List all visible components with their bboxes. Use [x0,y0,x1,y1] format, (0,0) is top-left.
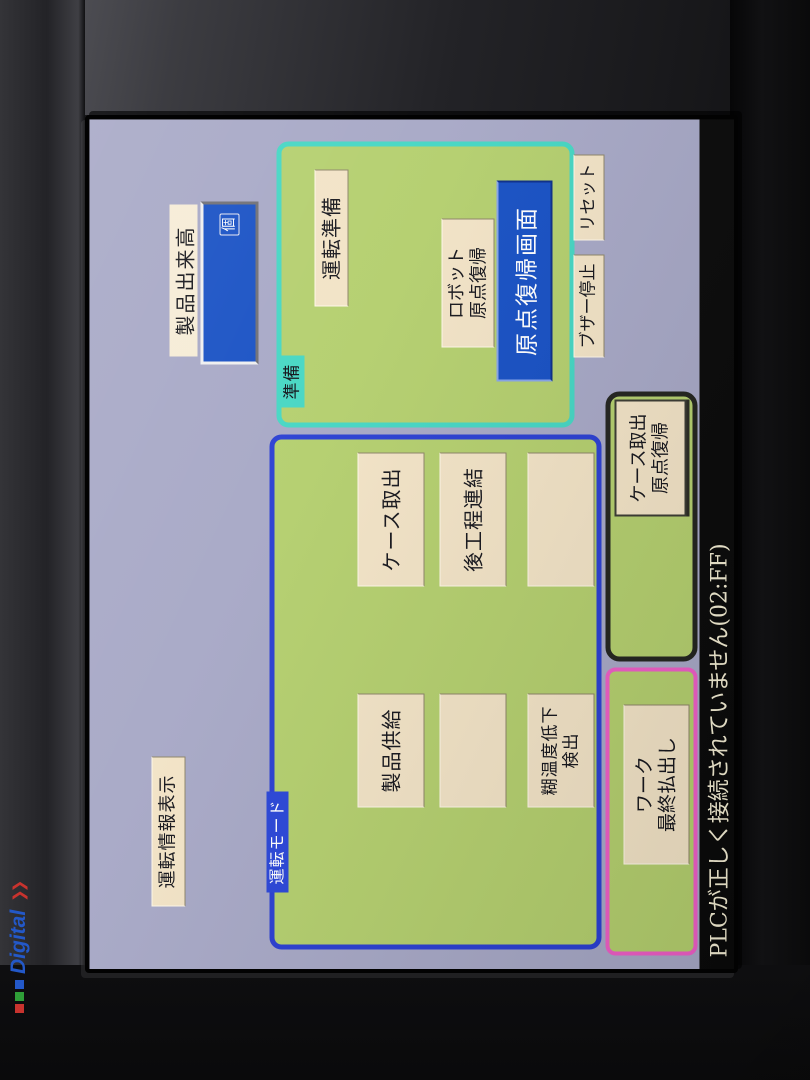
blank-button-right[interactable] [527,452,594,586]
work-discharge-button[interactable]: ワーク 最終払出し [623,704,689,864]
bezel-right-face [730,0,810,1080]
info-display-button[interactable]: 運転情報表示 [151,756,185,906]
robot-home-button[interactable]: ロボット 原点復帰 [441,218,494,347]
touchscreen: 運転情報表示 製品出来高 個 準備 運転準備 ロボット 原点復帰 原点復帰画面 … [85,115,738,973]
product-supply-button[interactable]: 製品供給 [357,693,424,807]
work-discharge-section: ワーク 最終払出し [605,667,697,955]
run-mode-section-title: 運転モード [266,791,288,892]
run-prepare-button[interactable]: 運転準備 [314,169,348,306]
glue-temp-low-button[interactable]: 糊温度低下 検出 [527,693,594,807]
hmi-ui: 運転情報表示 製品出来高 個 準備 運転準備 ロボット 原点復帰 原点復帰画面 … [89,119,734,969]
case-takeout-button[interactable]: ケース取出 [357,452,424,586]
logo-blue-square [15,980,24,989]
prepare-section: 準備 運転準備 ロボット 原点復帰 原点復帰画面 [276,141,574,427]
home-screen-button[interactable]: 原点復帰画面 [496,180,552,381]
case-home-section: ケース取出 原点復帰 [605,391,697,661]
brand-logo: Digital ❯❯ [0,852,38,1018]
brand-wordmark: Digital [7,910,31,974]
logo-chevrons-icon: ❯❯ [10,883,28,902]
post-process-link-button[interactable]: 後工程連結 [439,452,506,586]
production-count-label: 製品出来高 [169,204,197,356]
buzzer-stop-button[interactable]: ブザー停止 [573,254,604,357]
device-photo: Digital ❯❯ 運転情報表示 製品出来高 個 準備 運転準備 ロボット 原… [0,0,810,1080]
unit-badge: 個 [219,213,239,235]
reset-button[interactable]: リセット [573,154,604,240]
run-mode-section: 運転モード 製品供給 糊温度低下 検出 ケース取出 後工程連結 [269,434,601,949]
blank-button-left[interactable] [439,693,506,807]
logo-red-square [15,1004,24,1013]
bezel-top-face [0,0,810,115]
logo-green-square [15,992,24,1001]
production-count-display: 個 [200,201,258,364]
prepare-section-title: 準備 [281,355,304,407]
status-message: PLCが正しく接続されていません(02:FF) [701,543,733,957]
bezel-bottom-face [0,965,810,1080]
case-home-button[interactable]: ケース取出 原点復帰 [614,399,686,516]
status-bar: PLCが正しく接続されていません(02:FF) [699,119,734,969]
